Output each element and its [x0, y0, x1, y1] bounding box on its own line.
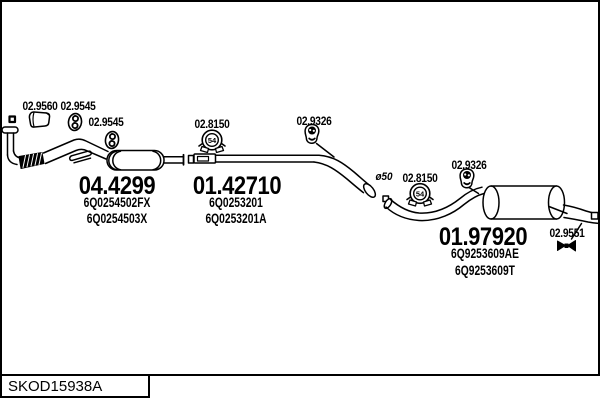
- rubber-hanger-icon-2: [460, 169, 474, 188]
- tail-bracket-icon: [558, 241, 576, 252]
- oem-ref-rear-1: 6Q9253609AE: [451, 246, 519, 261]
- fitting-label-02-8150-b: 02.8150: [402, 171, 437, 185]
- fitting-label-02-9326-a: 02.9326: [296, 114, 331, 128]
- fitting-label-02-8150-a: 02.8150: [194, 117, 229, 131]
- drawing-code-box: SKOD15938A: [0, 374, 150, 398]
- fitting-label-02-9545-a: 02.9545: [60, 99, 95, 113]
- clamp-size-text-1: 54: [208, 136, 217, 145]
- exhaust-parts-diagram: 54 54: [0, 0, 600, 400]
- pipe-bracket-icon: [70, 151, 92, 163]
- pipe-clamp-icon-2: 54: [407, 184, 433, 206]
- fitting-label-02-9326-b: 02.9326: [451, 158, 486, 172]
- oem-ref-middle-2: 6Q0253201A: [205, 211, 266, 226]
- pipe-diameter-label: ø50: [375, 171, 392, 183]
- oem-ref-front-1: 6Q0254502FX: [84, 195, 151, 210]
- oem-ref-rear-2: 6Q9253609T: [455, 263, 515, 278]
- fitting-label-02-9545-b: 02.9545: [88, 115, 123, 129]
- catalyst-silencer-body: [107, 151, 184, 171]
- rear-muffler-body: [483, 186, 567, 219]
- tailpipe: [564, 205, 599, 223]
- clamp-size-text-2: 54: [416, 189, 425, 198]
- drawing-code: SKOD15938A: [8, 378, 102, 395]
- rear-pipe: [383, 187, 484, 220]
- front-flange-and-downpipe: [2, 127, 21, 165]
- rubber-mount-icon-2: [104, 131, 119, 150]
- oem-ref-front-2: 6Q0254503X: [87, 211, 147, 226]
- fitting-label-02-9551: 02.9551: [549, 226, 584, 240]
- rubber-mount-icon-1: [67, 113, 82, 132]
- fitting-label-02-9560: 02.9560: [22, 99, 57, 113]
- oem-ref-middle-1: 6Q0253201: [209, 195, 263, 210]
- sleeve-joint: [189, 154, 216, 163]
- band-clamp-icon: [29, 112, 49, 127]
- pipe-clamp-icon-1: 54: [199, 130, 225, 152]
- mount-point-square-icon: [10, 117, 16, 123]
- flex-pipe-section: [19, 153, 44, 169]
